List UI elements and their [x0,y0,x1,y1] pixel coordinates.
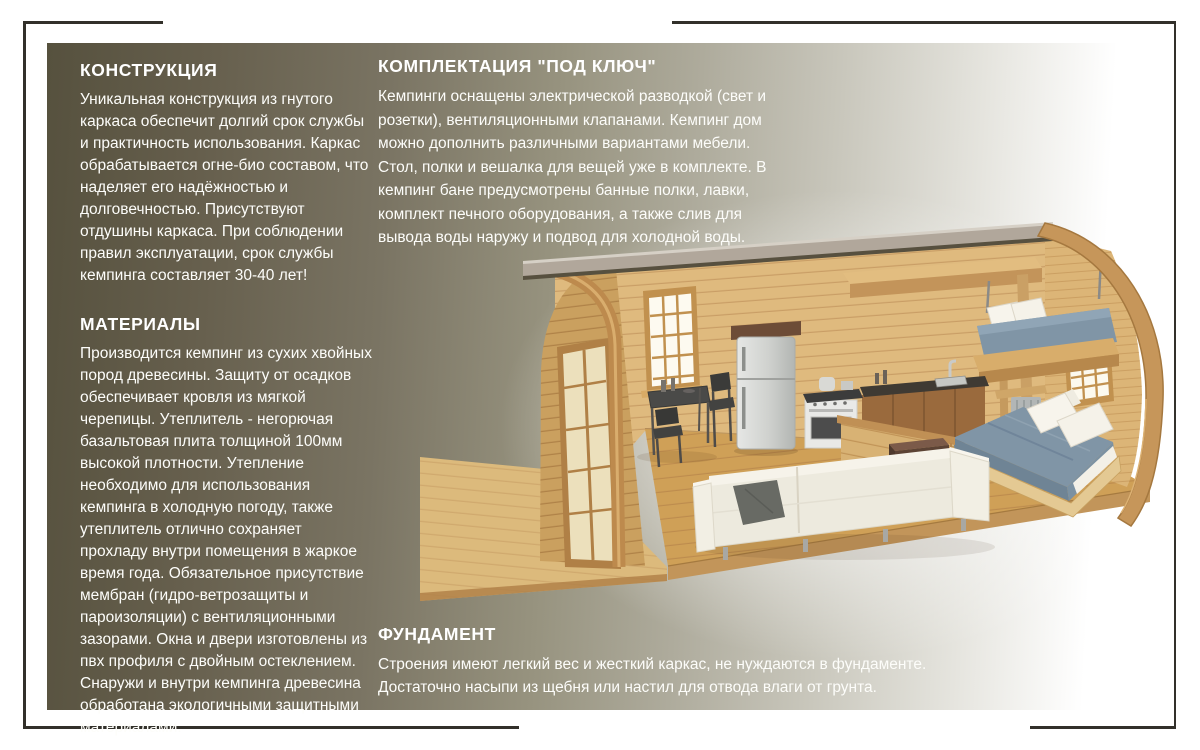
fridge [731,321,801,456]
turnkey-title: КОМПЛЕКТАЦИЯ "ПОД КЛЮЧ" [378,56,782,77]
materials-body: Производится кемпинг из сухих хвойных по… [80,343,372,739]
section-foundation: ФУНДАМЕНТ Строения имеют легкий вес и же… [378,624,938,699]
turnkey-body: Кемпинги оснащены электрической разводко… [378,85,782,250]
materials-title: МАТЕРИАЛЫ [80,314,372,335]
frame-bottom-right-segment [1030,726,1176,729]
frame-top-right-segment [672,21,1176,24]
frame-top-left-segment [23,21,163,24]
construction-body: Уникальная конструкция из гнутого каркас… [80,89,372,287]
foundation-title: ФУНДАМЕНТ [378,624,938,645]
pot [841,381,853,390]
section-materials: МАТЕРИАЛЫ Производится кемпинг из сухих … [80,314,372,739]
section-turnkey: КОМПЛЕКТАЦИЯ "ПОД КЛЮЧ" Кемпинги оснащен… [378,56,782,250]
camping-house-illustration [405,195,1180,635]
brochure-page: КОНСТРУКЦИЯ Уникальная конструкция из гн… [0,0,1200,750]
foundation-body: Строения имеют легкий вес и жесткий карк… [378,653,938,699]
kettle [819,377,835,391]
construction-title: КОНСТРУКЦИЯ [80,60,372,81]
frame-left-edge [23,21,26,728]
section-construction: КОНСТРУКЦИЯ Уникальная конструкция из гн… [80,60,372,287]
